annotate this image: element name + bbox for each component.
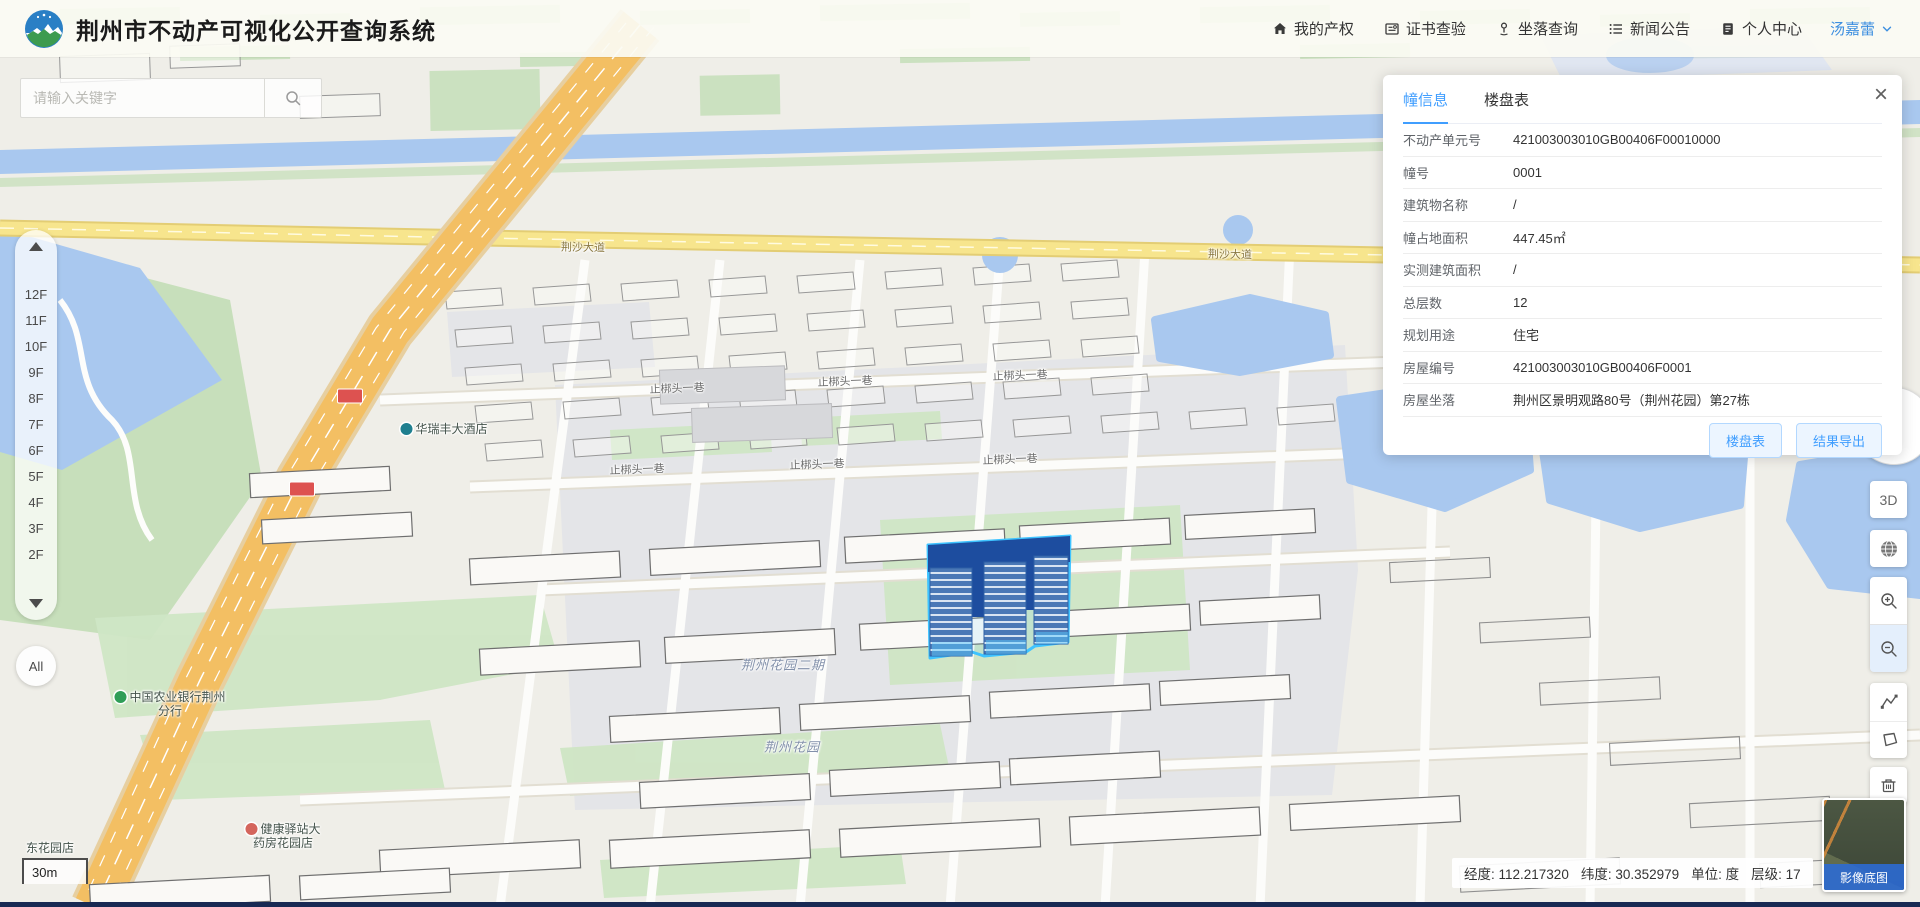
basemap-toggle[interactable]: 影像底图 bbox=[1822, 798, 1906, 892]
floor-item-9f[interactable]: 9F bbox=[28, 360, 43, 386]
globe-icon bbox=[1879, 539, 1899, 559]
nav-label: 个人中心 bbox=[1742, 18, 1802, 39]
user-name: 汤嘉蕾 bbox=[1830, 18, 1875, 39]
floor-all-button[interactable]: All bbox=[16, 646, 56, 686]
floor-item-5f[interactable]: 5F bbox=[28, 464, 43, 490]
floor-item-6f[interactable]: 6F bbox=[28, 438, 43, 464]
floor-item-2f[interactable]: 2F bbox=[28, 542, 43, 568]
search-box bbox=[20, 78, 322, 118]
tab-floor-table[interactable]: 楼盘表 bbox=[1484, 75, 1529, 123]
floor-item-10f[interactable]: 10F bbox=[25, 334, 47, 360]
measure-control bbox=[1870, 683, 1907, 758]
nav-label: 证书查验 bbox=[1406, 18, 1466, 39]
measure-area-button[interactable] bbox=[1870, 721, 1907, 760]
nav-my-property[interactable]: 我的产权 bbox=[1272, 18, 1354, 39]
scale-bar: 30m bbox=[22, 858, 88, 884]
status-纬度: 纬度: 30.352979 bbox=[1581, 863, 1679, 883]
nav-news[interactable]: 新闻公告 bbox=[1608, 18, 1690, 39]
selected-building[interactable] bbox=[928, 536, 1070, 658]
tab-building-info[interactable]: 幢信息 bbox=[1403, 75, 1448, 123]
header-nav: 我的产权证书查验坐落查询新闻公告个人中心 bbox=[1272, 18, 1802, 39]
zoom-out-icon bbox=[1879, 639, 1899, 659]
user-doc-icon bbox=[1720, 21, 1736, 37]
nav-label: 新闻公告 bbox=[1630, 18, 1690, 39]
building-info-panel: × 幢信息 楼盘表 不动产单元号421003003010GB00406F0001… bbox=[1383, 75, 1902, 455]
row-value: 荆州区景明观路80号（荆州花园）第27栋 bbox=[1513, 390, 1750, 409]
row-label: 幢号 bbox=[1403, 163, 1513, 182]
status-层级: 层级: 17 bbox=[1751, 863, 1801, 883]
floor-item-8f[interactable]: 8F bbox=[28, 386, 43, 412]
status-bar: 经度: 112.217320纬度: 30.352979单位: 度层级: 17 bbox=[1452, 858, 1813, 888]
row-label: 不动产单元号 bbox=[1403, 130, 1513, 149]
panel-row: 建筑物名称/ bbox=[1403, 189, 1882, 222]
panel-row: 不动产单元号421003003010GB00406F00010000 bbox=[1403, 124, 1882, 157]
search-button[interactable] bbox=[264, 79, 321, 117]
panel-row: 总层数12 bbox=[1403, 287, 1882, 320]
zoom-in-button[interactable] bbox=[1870, 577, 1907, 624]
measure-line-button[interactable] bbox=[1870, 683, 1907, 721]
export-result-button[interactable]: 结果导出 bbox=[1796, 423, 1882, 458]
floor-down-arrow[interactable] bbox=[29, 599, 43, 608]
home-icon bbox=[1272, 21, 1288, 37]
floor-item-4f[interactable]: 4F bbox=[28, 490, 43, 516]
row-label: 房屋编号 bbox=[1403, 358, 1513, 377]
location-icon bbox=[1496, 21, 1512, 37]
page-title: 荆州市不动产可视化公开查询系统 bbox=[76, 12, 436, 46]
nav-personal-center[interactable]: 个人中心 bbox=[1720, 18, 1802, 39]
panel-row: 实测建筑面积/ bbox=[1403, 254, 1882, 287]
nav-label: 我的产权 bbox=[1294, 18, 1354, 39]
panel-rows: 不动产单元号421003003010GB00406F00010000幢号0001… bbox=[1403, 124, 1882, 417]
3d-label: 3D bbox=[1870, 481, 1907, 518]
scale-label: 30m bbox=[32, 865, 57, 880]
row-value: 447.45㎡ bbox=[1513, 228, 1566, 247]
toggle-3d-button[interactable]: 3D bbox=[1870, 481, 1907, 518]
row-value: 12 bbox=[1513, 295, 1527, 310]
polyline-icon bbox=[1879, 692, 1899, 712]
globe-button[interactable] bbox=[1870, 530, 1907, 567]
nav-label: 坐落查询 bbox=[1518, 18, 1578, 39]
news-icon bbox=[1608, 21, 1624, 37]
floor-selector: 12F11F10F9F8F7F6F5F4F3F2F bbox=[15, 230, 57, 620]
trash-icon bbox=[1879, 776, 1898, 795]
zoom-in-icon bbox=[1879, 591, 1899, 611]
floor-item-12f[interactable]: 12F bbox=[25, 282, 47, 308]
panel-row: 规划用途住宅 bbox=[1403, 319, 1882, 352]
floor-item-7f[interactable]: 7F bbox=[28, 412, 43, 438]
app-root: 荆沙大道荆沙大道荆沙大道止梆头一巷止梆头一巷止梆头一巷止梆头一巷止梆头一巷止梆头… bbox=[0, 0, 1920, 907]
nav-cert-check[interactable]: 证书查验 bbox=[1384, 18, 1466, 39]
row-label: 总层数 bbox=[1403, 293, 1513, 312]
nav-location-query[interactable]: 坐落查询 bbox=[1496, 18, 1578, 39]
row-label: 幢占地面积 bbox=[1403, 228, 1513, 247]
zoom-out-button[interactable] bbox=[1870, 624, 1907, 672]
search-icon bbox=[284, 89, 302, 107]
floor-up-arrow[interactable] bbox=[29, 242, 43, 251]
certificate-icon bbox=[1384, 21, 1400, 37]
zoom-control bbox=[1870, 577, 1907, 671]
user-menu[interactable]: 汤嘉蕾 bbox=[1830, 18, 1894, 39]
row-value: / bbox=[1513, 197, 1517, 212]
row-label: 房屋坐落 bbox=[1403, 390, 1513, 409]
panel-footer: 楼盘表结果导出 bbox=[1403, 417, 1882, 464]
row-label: 规划用途 bbox=[1403, 325, 1513, 344]
row-value: 421003003010GB00406F00010000 bbox=[1513, 132, 1720, 147]
basemap-label: 影像底图 bbox=[1824, 864, 1904, 890]
row-label: 实测建筑面积 bbox=[1403, 260, 1513, 279]
panel-row: 幢占地面积447.45㎡ bbox=[1403, 222, 1882, 255]
app-header: 荆州市不动产可视化公开查询系统 我的产权证书查验坐落查询新闻公告个人中心 汤嘉蕾 bbox=[0, 0, 1920, 57]
app-logo-icon bbox=[24, 9, 64, 49]
polygon-icon bbox=[1879, 730, 1899, 750]
panel-row: 房屋坐落荆州区景明观路80号（荆州花园）第27栋 bbox=[1403, 384, 1882, 417]
status-经度: 经度: 112.217320 bbox=[1464, 863, 1569, 883]
chevron-down-icon bbox=[1880, 22, 1894, 36]
floor-item-3f[interactable]: 3F bbox=[28, 516, 43, 542]
panel-row: 幢号0001 bbox=[1403, 157, 1882, 190]
row-label: 建筑物名称 bbox=[1403, 195, 1513, 214]
row-value: 0001 bbox=[1513, 165, 1542, 180]
panel-tabs: 幢信息 楼盘表 bbox=[1403, 75, 1882, 124]
status-单位: 单位: 度 bbox=[1691, 863, 1739, 883]
floor-list: 12F11F10F9F8F7F6F5F4F3F2F bbox=[25, 282, 47, 568]
floor-table-button[interactable]: 楼盘表 bbox=[1709, 423, 1782, 458]
row-value: 住宅 bbox=[1513, 325, 1539, 344]
floor-item-11f[interactable]: 11F bbox=[25, 308, 46, 334]
panel-row: 房屋编号421003003010GB00406F0001 bbox=[1403, 352, 1882, 385]
row-value: / bbox=[1513, 262, 1517, 277]
search-input[interactable] bbox=[21, 79, 264, 117]
row-value: 421003003010GB00406F0001 bbox=[1513, 360, 1692, 375]
bottom-strip bbox=[0, 902, 1920, 907]
